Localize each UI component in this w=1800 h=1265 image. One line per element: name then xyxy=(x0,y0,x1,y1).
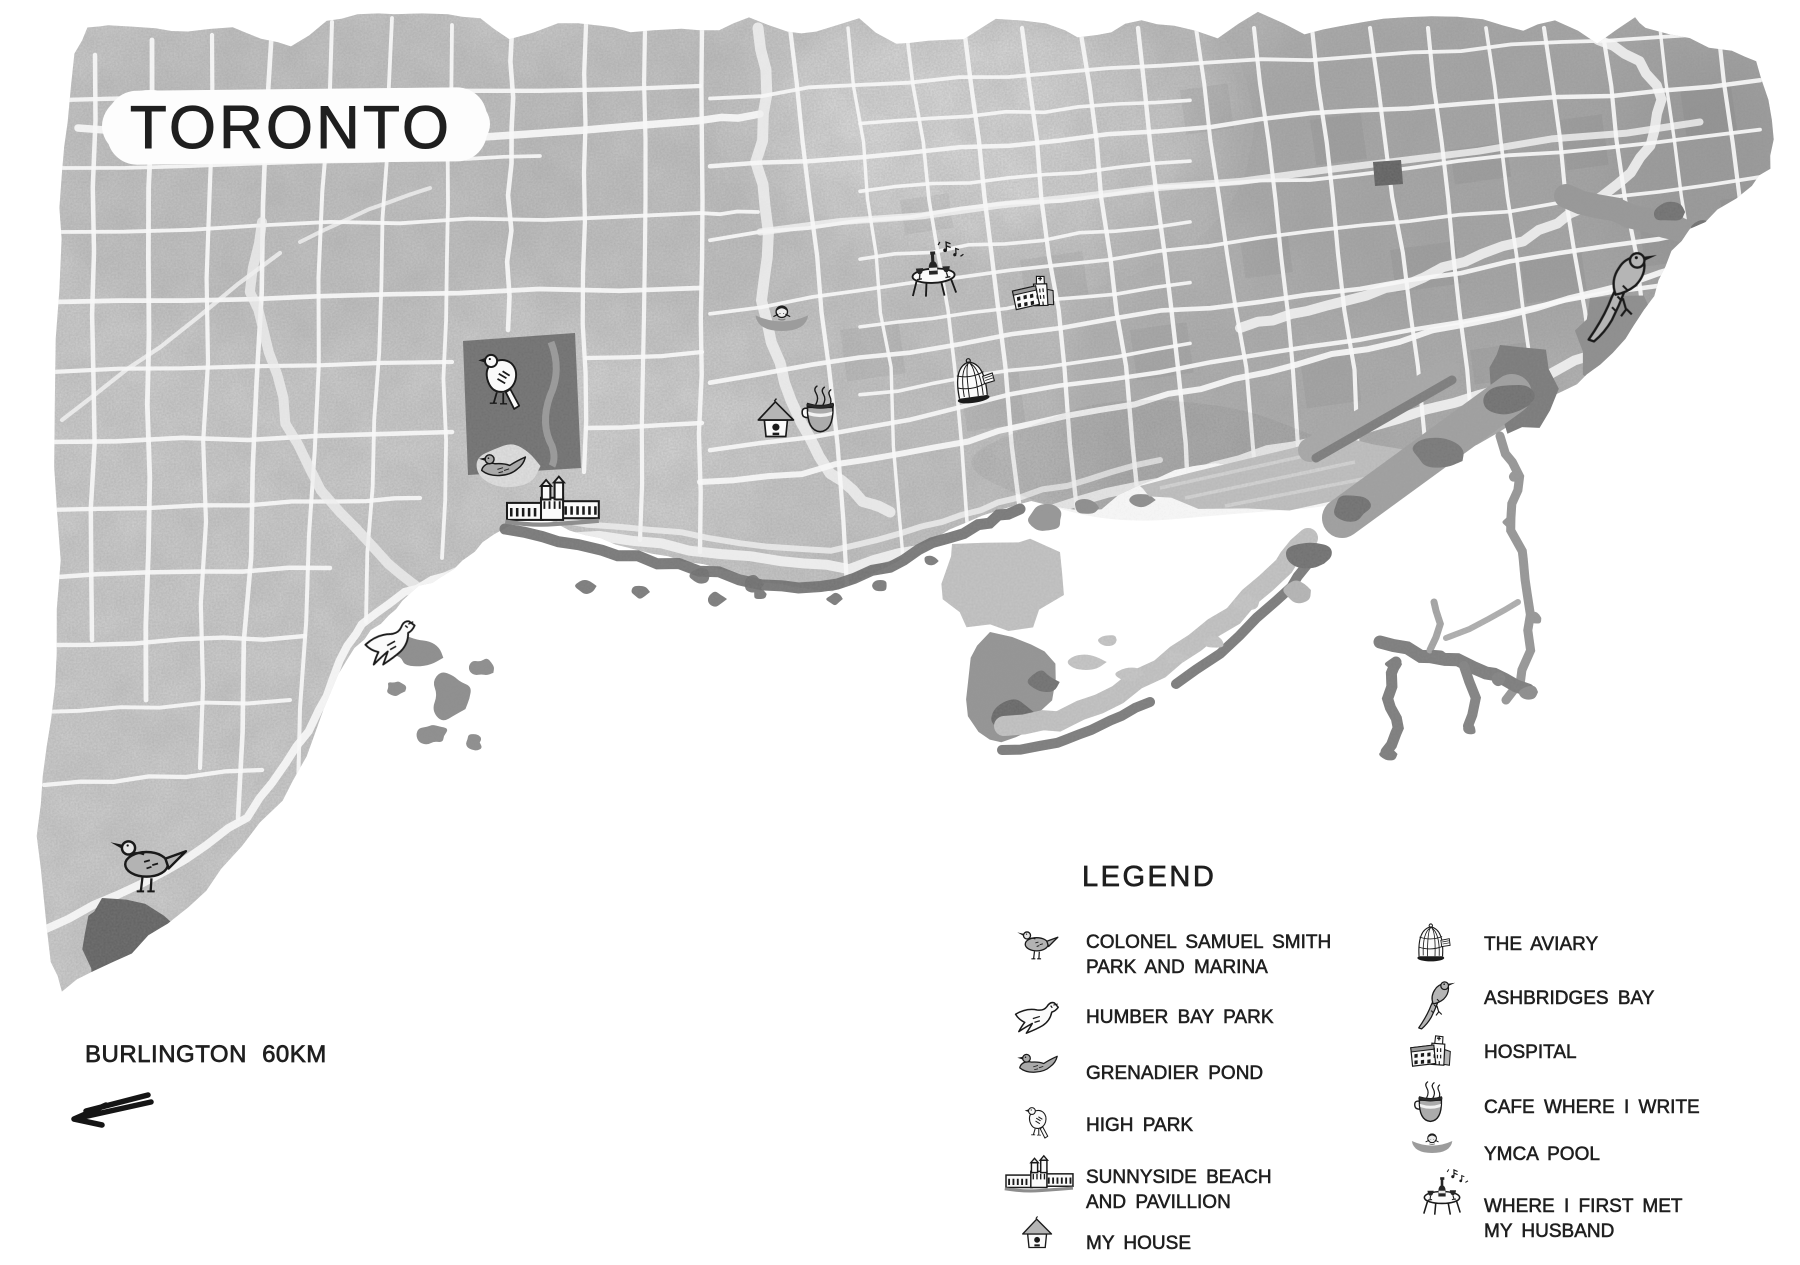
svg-text:WHERE I FIRST MET: WHERE I FIRST MET xyxy=(1484,1196,1683,1217)
svg-text:HIGH PARK: HIGH PARK xyxy=(1086,1115,1193,1136)
svg-text:MY HUSBAND: MY HUSBAND xyxy=(1484,1221,1614,1242)
svg-text:THE AVIARY: THE AVIARY xyxy=(1484,934,1598,955)
svg-text:HUMBER BAY PARK: HUMBER BAY PARK xyxy=(1086,1007,1274,1028)
svg-text:YMCA POOL: YMCA POOL xyxy=(1484,1144,1600,1165)
svg-text:GRENADIER POND: GRENADIER POND xyxy=(1086,1063,1263,1084)
svg-text:CAFE WHERE I WRITE: CAFE WHERE I WRITE xyxy=(1484,1097,1700,1118)
svg-text:ASHBRIDGES BAY: ASHBRIDGES BAY xyxy=(1484,988,1655,1009)
svg-text:LEGEND: LEGEND xyxy=(1082,861,1216,893)
svg-text:BURLINGTON 60KM: BURLINGTON 60KM xyxy=(85,1041,327,1068)
svg-text:AND PAVILLION: AND PAVILLION xyxy=(1086,1192,1231,1213)
svg-text:TORONTO: TORONTO xyxy=(130,94,452,161)
svg-text:MY HOUSE: MY HOUSE xyxy=(1086,1233,1191,1254)
svg-text:PARK AND MARINA: PARK AND MARINA xyxy=(1086,957,1268,978)
svg-text:HOSPITAL: HOSPITAL xyxy=(1484,1042,1577,1063)
svg-text:SUNNYSIDE BEACH: SUNNYSIDE BEACH xyxy=(1086,1167,1272,1188)
svg-text:COLONEL SAMUEL SMITH: COLONEL SAMUEL SMITH xyxy=(1086,932,1331,953)
